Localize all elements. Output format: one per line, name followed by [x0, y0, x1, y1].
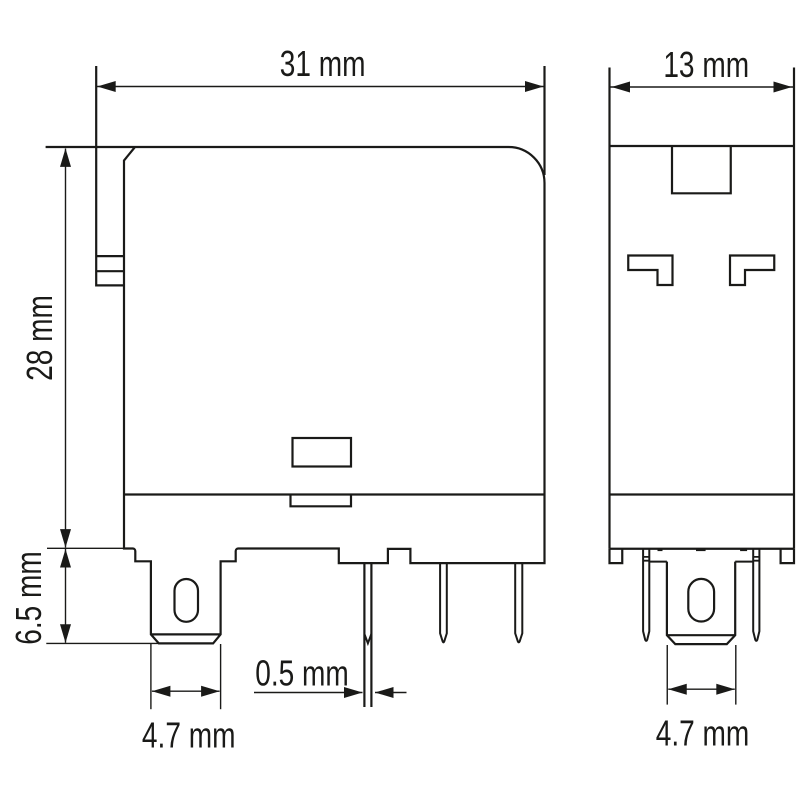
svg-text:0.5 mm: 0.5 mm — [255, 653, 349, 693]
svg-text:6.5 mm: 6.5 mm — [9, 551, 49, 645]
svg-text:4.7 mm: 4.7 mm — [656, 713, 750, 753]
svg-text:4.7 mm: 4.7 mm — [142, 715, 236, 755]
svg-text:31 mm: 31 mm — [280, 44, 366, 84]
svg-text:13 mm: 13 mm — [663, 45, 749, 85]
svg-text:28 mm: 28 mm — [20, 295, 60, 381]
